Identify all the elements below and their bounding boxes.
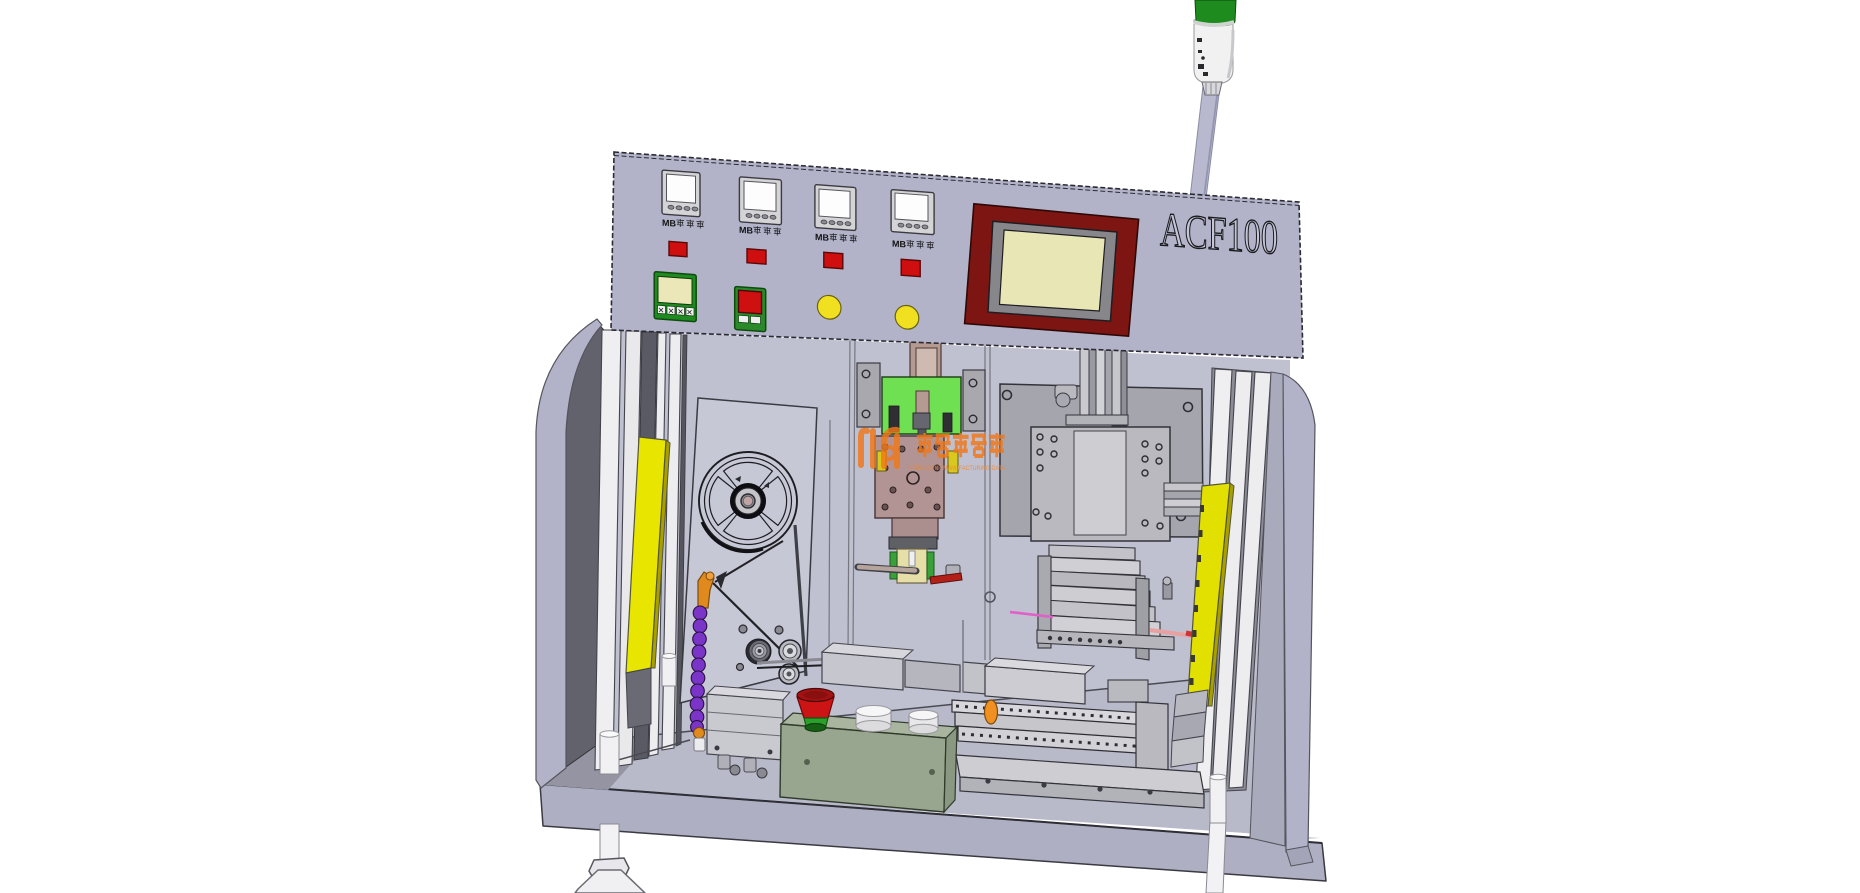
svg-text:INTELLIGENT MANUFACTURING DATA: INTELLIGENT MANUFACTURING DATA [907,466,1005,472]
svg-text:ACF100: ACF100 [1160,203,1278,265]
svg-text:MB: MB [662,218,676,229]
svg-text:MB: MB [739,225,753,236]
svg-text:MB: MB [815,232,829,243]
svg-text:MB: MB [892,239,906,250]
